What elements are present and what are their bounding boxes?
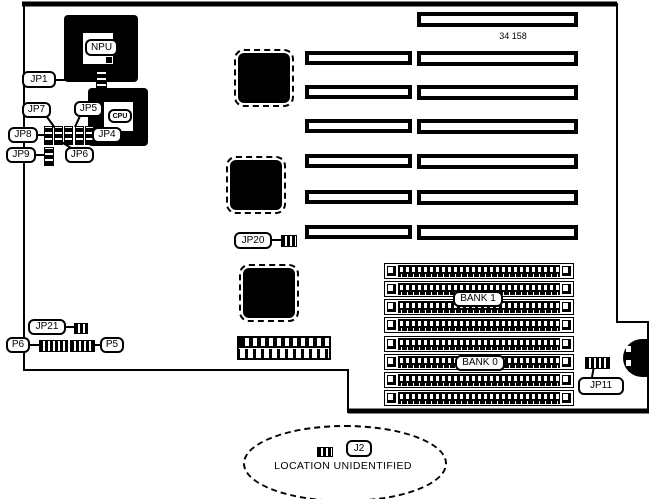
jp11-jumper — [585, 357, 610, 369]
jp1-label: JP1 — [22, 71, 56, 88]
isa-slot-5-short — [305, 154, 412, 168]
simm-contacts — [398, 319, 560, 331]
jp9-jumper — [44, 147, 54, 166]
p5-header — [70, 340, 95, 352]
motherboard-diagram: NPU CPU 34 158 BANK 1 BANK 0 J — [0, 0, 649, 499]
qfp-chip-3 — [243, 268, 295, 318]
part-number: 34 158 — [483, 32, 543, 41]
p6-text: P6 — [12, 340, 24, 350]
location-note-text: LOCATION UNIDENTIFIED — [274, 460, 412, 472]
isa-slot-3-long — [417, 85, 578, 100]
p5-label: P5 — [100, 337, 124, 353]
isa-slot-1-long — [417, 12, 578, 27]
cpu-jumper-block-1 — [44, 126, 53, 145]
jp11-text: JP11 — [590, 381, 612, 391]
jp4-text: JP4 — [98, 130, 115, 140]
cpu-label: CPU — [108, 109, 132, 123]
isa-slot-2-short — [305, 51, 412, 65]
jp6-text: JP6 — [71, 150, 88, 160]
bank0-label: BANK 0 — [455, 355, 505, 371]
cpu-jumper-block-2 — [54, 126, 63, 145]
jp20-label: JP20 — [234, 232, 272, 249]
npu-label: NPU — [85, 39, 118, 56]
part-number-text: 34 158 — [499, 31, 527, 41]
qfp-chip-1 — [238, 53, 290, 103]
bank0-label-text: BANK 0 — [462, 358, 498, 368]
jp21-label: JP21 — [28, 319, 66, 335]
jp1-jumper — [96, 70, 107, 91]
jp11-label: JP11 — [578, 377, 624, 395]
isa-slot-5-long — [417, 154, 578, 169]
jp21-text: JP21 — [36, 322, 59, 332]
simm-socket-bank0-4 — [384, 390, 574, 406]
jp9-label: JP9 — [6, 147, 36, 163]
keyboard-connector-notch-1 — [626, 346, 631, 352]
jp20-jumper — [281, 235, 297, 247]
bank1-label: BANK 1 — [453, 291, 503, 307]
cpu-jumper-block-4 — [75, 126, 84, 145]
jp7-label: JP7 — [22, 102, 51, 118]
jp4-label: JP4 — [92, 127, 122, 143]
isa-slot-3-short — [305, 85, 412, 99]
bank1-label-text: BANK 1 — [460, 294, 496, 304]
j2-label: J2 — [346, 440, 372, 457]
jp9-text: JP9 — [12, 150, 29, 160]
isa-slot-2-long — [417, 51, 578, 66]
isa-slot-6-long — [417, 190, 578, 205]
cpu-label-text: CPU — [113, 113, 128, 120]
jp5-label: JP5 — [74, 101, 103, 117]
simm-contacts — [398, 338, 560, 350]
header-connector-pins — [239, 338, 329, 348]
p6-header — [39, 340, 68, 352]
p5-text: P5 — [106, 340, 118, 350]
simm-contacts — [398, 265, 560, 277]
isa-slot-4-short — [305, 119, 412, 133]
isa-slot-6-short — [305, 190, 412, 204]
simm-contacts — [398, 392, 560, 404]
j2-text: J2 — [354, 444, 365, 454]
header-connector — [237, 336, 331, 360]
jp6-label: JP6 — [65, 147, 94, 163]
location-note: LOCATION UNIDENTIFIED — [253, 461, 433, 472]
isa-slot-4-long — [417, 119, 578, 134]
cpu-jumper-block-3 — [64, 126, 73, 145]
keyboard-connector-notch-2 — [626, 360, 631, 366]
isa-slot-7-short — [305, 225, 412, 239]
simm-socket-bank1-4 — [384, 317, 574, 333]
j2-jumper — [317, 447, 333, 457]
jp1-text: JP1 — [30, 75, 47, 85]
jp7-text: JP7 — [28, 105, 45, 115]
simm-socket-bank0-1 — [384, 336, 574, 352]
p6-label: P6 — [6, 337, 30, 353]
jp8-text: JP8 — [14, 130, 31, 140]
jp5-text: JP5 — [80, 104, 97, 114]
jp20-text: JP20 — [242, 236, 265, 246]
npu-label-text: NPU — [91, 43, 112, 53]
jp8-label: JP8 — [8, 127, 38, 143]
jp21-jumper — [74, 323, 88, 334]
simm-contacts — [398, 374, 560, 386]
isa-slot-7-long — [417, 225, 578, 240]
npu-pin1-notch — [106, 57, 112, 63]
simm-socket-bank1-1 — [384, 263, 574, 279]
qfp-chip-2 — [230, 160, 282, 210]
header-connector-contacts — [239, 348, 329, 358]
simm-socket-bank0-3 — [384, 372, 574, 388]
